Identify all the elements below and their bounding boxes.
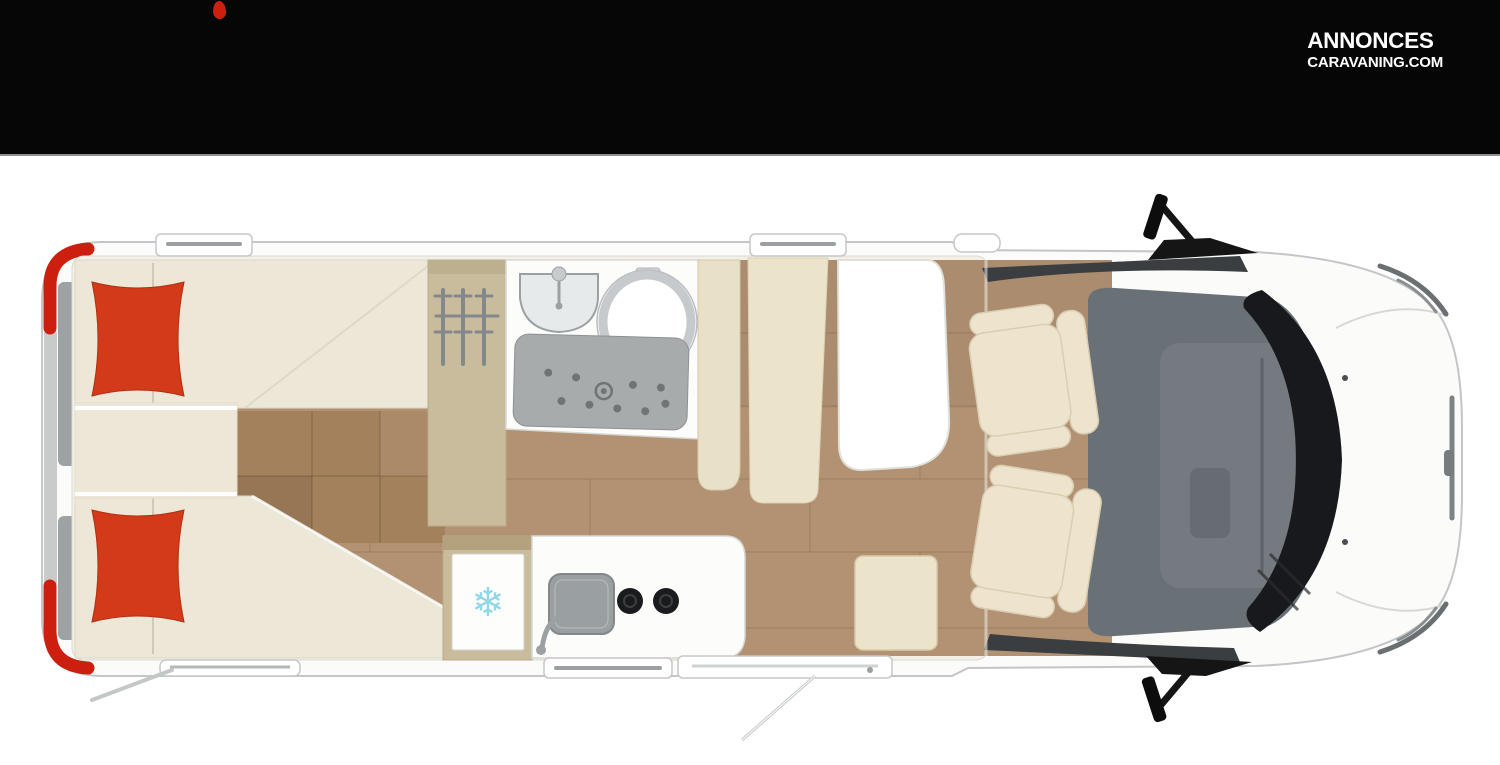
kitchen-counter — [532, 536, 745, 658]
hood-dot-bottom — [1342, 539, 1348, 545]
snowflake-icon: ❄ — [471, 580, 505, 626]
side-mirror-top — [1142, 193, 1258, 260]
kitchen: ❄ — [443, 536, 745, 660]
bathroom — [506, 260, 700, 439]
cab-console — [1160, 343, 1295, 588]
rear-wall-strip-light — [44, 330, 57, 586]
logo-line1: ANNONCES — [1307, 30, 1443, 53]
roof-window-mid — [750, 234, 846, 256]
roof-window-rear — [156, 234, 252, 256]
side-mirror-bottom — [1141, 656, 1252, 723]
red-accent-dot — [212, 1, 226, 20]
pillow-bottom — [92, 510, 184, 622]
top-banner: ANNONCES CARAVANING.COM — [0, 0, 1500, 156]
floorplan-area: ❄ — [0, 156, 1500, 763]
logo-line2: CARAVANING.COM — [1307, 55, 1443, 70]
dinette-backrest-narrow — [698, 260, 740, 490]
pillow-top — [92, 282, 184, 396]
fridge: ❄ — [443, 536, 532, 660]
roof-vent — [954, 234, 1000, 252]
kitchen-sink — [549, 574, 614, 634]
motorhome-floorplan: ❄ — [0, 156, 1500, 763]
wardrobe — [428, 260, 506, 526]
site-logo: ANNONCES CARAVANING.COM — [1307, 30, 1443, 70]
entry-door — [678, 656, 892, 740]
side-bench — [855, 556, 937, 650]
washbasin-icon — [520, 267, 598, 332]
dinette-table — [838, 260, 949, 470]
dinette-backrest-wide — [748, 258, 828, 503]
shower-tray — [513, 334, 689, 431]
cab-console-detail — [1190, 468, 1230, 538]
front-handle-detail — [1444, 450, 1454, 476]
hood-dot-top — [1342, 375, 1348, 381]
kitchen-window — [544, 658, 672, 678]
bed-center-console — [75, 403, 237, 498]
